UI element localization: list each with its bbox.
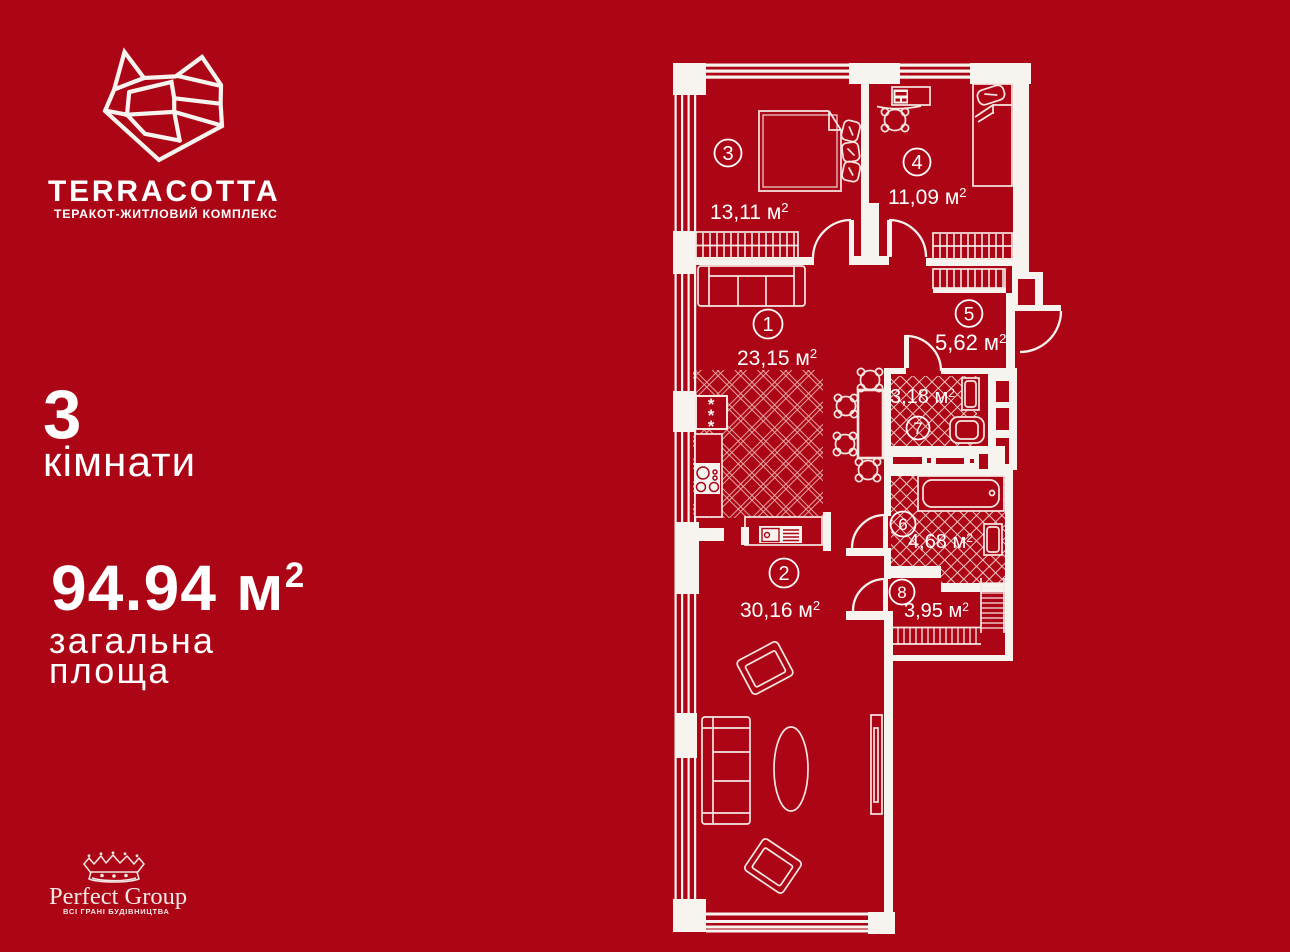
svg-text:5: 5	[964, 305, 975, 326]
svg-text:13,11 м2: 13,11 м2	[710, 200, 789, 224]
svg-text:6: 6	[898, 515, 907, 534]
svg-text:*: *	[708, 417, 715, 436]
svg-text:23,15 м2: 23,15 м2	[737, 346, 817, 370]
svg-text:7: 7	[913, 419, 922, 438]
svg-text:11,09 м2: 11,09 м2	[888, 185, 967, 209]
svg-text:5,62 м2: 5,62 м2	[935, 330, 1006, 355]
svg-text:30,16 м2: 30,16 м2	[740, 598, 820, 622]
svg-text:2: 2	[778, 563, 789, 585]
svg-text:1: 1	[762, 314, 773, 336]
svg-text:4: 4	[911, 152, 922, 174]
svg-text:4,68 м2: 4,68 м2	[908, 531, 973, 553]
svg-text:3: 3	[722, 143, 733, 165]
svg-text:3,95 м2: 3,95 м2	[904, 600, 969, 622]
svg-text:3,18 м2: 3,18 м2	[890, 386, 955, 408]
